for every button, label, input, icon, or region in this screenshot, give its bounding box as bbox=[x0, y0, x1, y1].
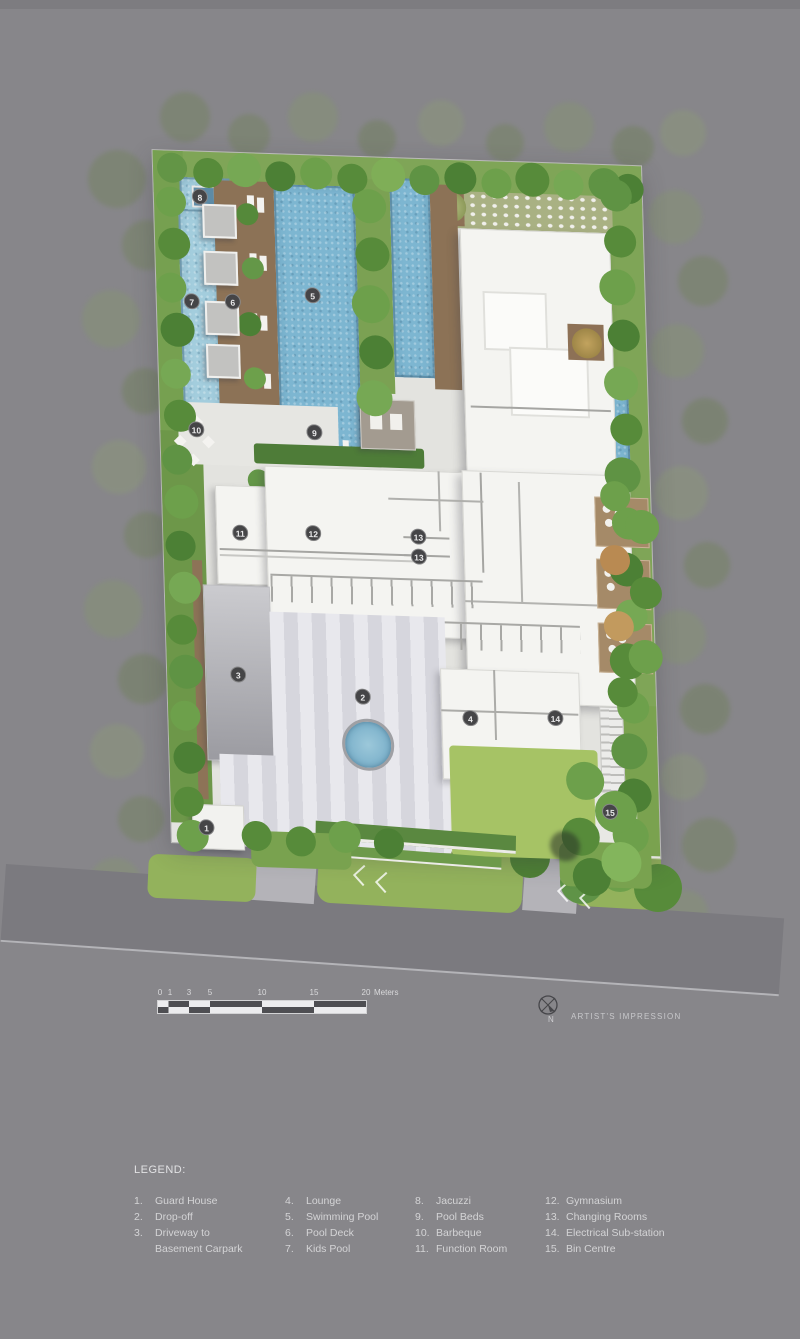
legend-item: 13.Changing Rooms bbox=[545, 1211, 665, 1227]
cabana bbox=[203, 251, 238, 286]
legend-item: 6.Pool Deck bbox=[285, 1227, 378, 1243]
plan-marker-pool-deck: 6 bbox=[225, 293, 241, 310]
scale-bar-row bbox=[158, 1007, 366, 1013]
legend-column: 12.Gymnasium 13.Changing Rooms 14.Electr… bbox=[545, 1195, 665, 1259]
plan-marker-driveway: 3 bbox=[230, 666, 246, 683]
plan-marker-pool-beds: 9 bbox=[306, 424, 322, 441]
plan-marker-changing-rooms: 13 bbox=[411, 548, 427, 565]
plan-marker-lounge: 4 bbox=[462, 710, 478, 727]
plan-marker-changing-rooms: 13 bbox=[410, 528, 426, 545]
site-plan-page: 8 7 6 5 9 10 11 12 13 13 3 2 4 14 15 1 0… bbox=[0, 0, 800, 1339]
pool-pavilion bbox=[360, 399, 416, 451]
legend-item: 3.Driveway to bbox=[134, 1227, 243, 1243]
north-label: N bbox=[548, 1015, 554, 1024]
plan-marker-function-room: 11 bbox=[232, 524, 248, 541]
scale-tick: 3 bbox=[187, 988, 191, 997]
legend-item: 15.Bin Centre bbox=[545, 1243, 665, 1259]
outside-trees-left bbox=[88, 150, 146, 208]
terrace-patio bbox=[598, 622, 653, 674]
legend-item: 8.Jacuzzi bbox=[415, 1195, 507, 1211]
lap-pool bbox=[389, 178, 435, 378]
scale-tick: 0 bbox=[158, 988, 162, 997]
terrace-tables bbox=[604, 569, 612, 577]
legend-item: 4.Lounge bbox=[285, 1195, 378, 1211]
site-plan-drawing: 8 7 6 5 9 10 11 12 13 13 3 2 4 14 15 1 bbox=[148, 130, 665, 876]
artists-impression-note: ARTIST'S IMPRESSION bbox=[571, 1012, 681, 1021]
lap-pool-deck bbox=[430, 184, 463, 390]
scale-unit-label: Meters bbox=[374, 988, 398, 997]
scale-bar-graphic bbox=[158, 1001, 366, 1013]
plan-marker-barbeque: 10 bbox=[188, 421, 204, 438]
scale-tick: 15 bbox=[310, 988, 319, 997]
legend-item: 14.Electrical Sub-station bbox=[545, 1227, 665, 1243]
legend-column: 4.Lounge 5.Swimming Pool 6.Pool Deck 7.K… bbox=[285, 1195, 378, 1259]
plan-marker-kids-pool: 7 bbox=[184, 293, 200, 310]
plan-marker-drop-off: 2 bbox=[355, 688, 371, 705]
legend-title: LEGEND: bbox=[134, 1164, 714, 1176]
scale-tick: 1 bbox=[168, 988, 172, 997]
plan-marker-jacuzzi: 8 bbox=[192, 188, 208, 205]
legend-column: 1.Guard House 2.Drop-off 3.Driveway to B… bbox=[134, 1195, 243, 1259]
plan-marker-substation: 14 bbox=[547, 710, 563, 727]
terrace-tables bbox=[606, 631, 614, 639]
top-border-strip bbox=[0, 0, 800, 9]
plan-marker-bin-centre: 15 bbox=[602, 803, 618, 820]
legend-item: 1.Guard House bbox=[134, 1195, 243, 1211]
deck-trees bbox=[236, 203, 259, 226]
plan-marker-guard-house: 1 bbox=[198, 819, 214, 836]
scale-bar: 0 1 3 5 10 15 20 Meters bbox=[158, 988, 418, 1018]
legend-item: 12.Gymnasium bbox=[545, 1195, 665, 1211]
legend-item: 5.Swimming Pool bbox=[285, 1211, 378, 1227]
cabana bbox=[206, 344, 241, 379]
cabana bbox=[202, 204, 237, 239]
terrace-patio bbox=[596, 558, 651, 610]
legend-item: 9.Pool Beds bbox=[415, 1211, 507, 1227]
plan-marker-gymnasium: 12 bbox=[305, 525, 321, 542]
legend-column: 8.Jacuzzi 9.Pool Beds 10.Barbeque 11.Fun… bbox=[415, 1195, 507, 1259]
pavilion-seat bbox=[370, 413, 382, 429]
legend: LEGEND: 1.Guard House 2.Drop-off 3.Drive… bbox=[134, 1164, 714, 1176]
outside-trees-right bbox=[648, 190, 702, 244]
scale-tick: 5 bbox=[208, 988, 212, 997]
tower-roof-detail bbox=[482, 291, 548, 352]
plan-marker-swimming-pool: 5 bbox=[304, 287, 320, 304]
pavilion-seat bbox=[390, 414, 402, 430]
legend-item: 11.Function Room bbox=[415, 1243, 507, 1259]
legend-item: 10.Barbeque bbox=[415, 1227, 507, 1243]
scale-tick: 10 bbox=[258, 988, 267, 997]
scale-tick: 20 bbox=[362, 988, 371, 997]
legend-item: Basement Carpark bbox=[134, 1243, 243, 1259]
legend-item: 2.Drop-off bbox=[134, 1211, 243, 1227]
legend-item: 7.Kids Pool bbox=[285, 1243, 378, 1259]
